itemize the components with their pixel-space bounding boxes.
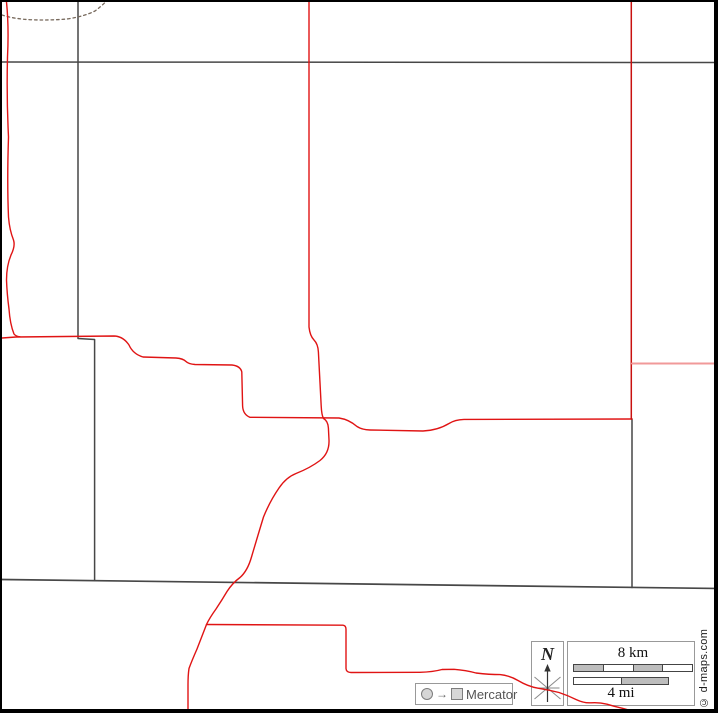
- map-line-stream-dotted: [2, 2, 106, 20]
- compass-north-label: N: [532, 644, 563, 664]
- map-line-boundary-mid: [2, 580, 714, 589]
- map-line-road-main: [2, 336, 632, 431]
- map-line-road-west-vertical: [7, 2, 21, 337]
- projection-label: Mercator: [466, 687, 517, 702]
- flat-map-icon: [451, 688, 463, 700]
- map-line-road-center-vertical: [188, 2, 329, 709]
- scale-bar-mi: [573, 677, 669, 685]
- map-lines-svg: [2, 2, 714, 709]
- sphere-icon: [421, 688, 433, 700]
- scale-segment: [634, 665, 664, 671]
- scale-segment: [663, 665, 692, 671]
- map-canvas: N 8 km 4 mi → Mercator © d-maps.com: [0, 0, 718, 713]
- scale-bar-panel: 8 km 4 mi: [567, 641, 695, 706]
- map-line-boundary-west: [78, 2, 95, 581]
- compass-needle-icon: [533, 664, 562, 704]
- scale-segment: [574, 665, 604, 671]
- scale-mi-label: 4 mi: [573, 685, 669, 702]
- compass-rose: N: [531, 641, 564, 706]
- map-line-boundary-top: [2, 62, 714, 63]
- scale-segment: [622, 678, 669, 684]
- projection-badge: → Mercator: [415, 683, 513, 705]
- scale-km-label: 8 km: [573, 645, 693, 662]
- projection-arrow-icon: →: [436, 689, 448, 699]
- copyright-credit: © d-maps.com: [698, 628, 713, 708]
- scale-segment: [604, 665, 634, 671]
- scale-bar-km: [573, 664, 693, 672]
- scale-segment: [574, 678, 622, 684]
